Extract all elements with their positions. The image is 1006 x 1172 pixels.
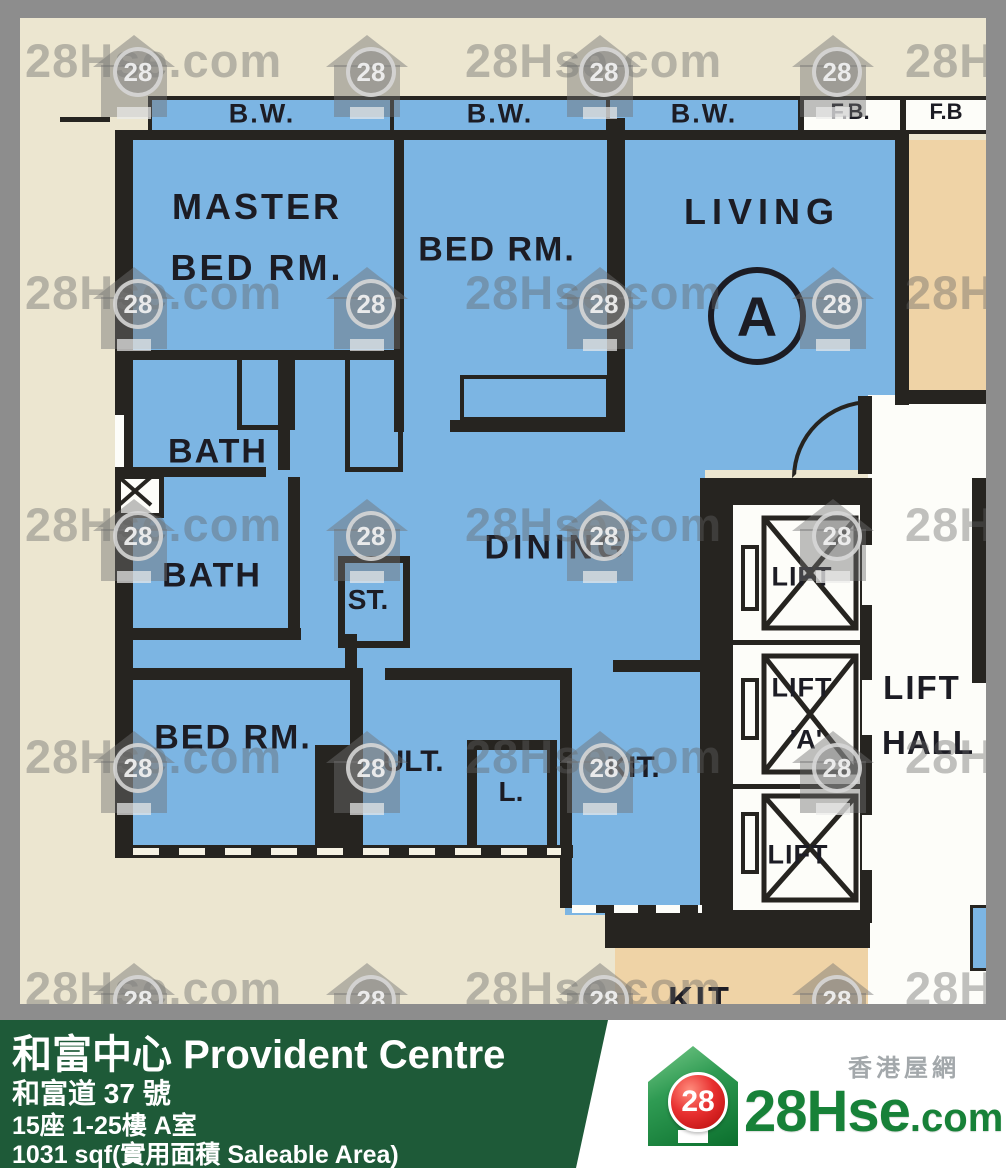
flower-bed-label-2: F.B [930,99,963,125]
lift-separator-1 [733,640,860,645]
bedroom-lower-label: BED RM. [154,719,312,758]
floorplan-area: B.W. B.W. B.W. F.B. F.B MASTER BED RM. B… [0,0,1006,1004]
bay-window-label-1: B.W. [229,99,296,130]
lift-door-3 [741,812,759,874]
bay-window-label-3: B.W. [671,99,738,130]
store-label: ST. [348,584,388,616]
lower-rooms-top-wall-left [133,668,363,680]
neighbor-column-bottom-wall [903,390,986,404]
frame-bottom [0,1004,1006,1020]
unit-a-kitchen-fill [565,660,705,915]
bottom-wall-windows [133,848,561,855]
footer-bar: 和富中心 Provident Centre 和富道 37 號 15座 1-25樓… [0,1020,1006,1172]
bay-window-label-2: B.W. [467,99,534,130]
lift-hall-opening-1 [862,545,872,605]
lift-hall-opening-2 [862,680,872,735]
frame-top [0,0,1006,18]
lift-separator-2 [733,784,860,789]
lower-rooms-top-wall-mid [385,668,563,680]
lift-hall-opening-3 [862,815,872,870]
left-exterior-mark [60,117,110,122]
bedroom-return-wall [450,420,622,432]
brand-logo-text: 28Hse.com [744,1078,1003,1145]
lift-middle-label: LIFT [772,673,833,704]
bath-lower-label: BATH [162,557,262,596]
brand-badge-28: 28 [668,1072,728,1132]
frame-right [986,0,1006,1020]
utility-label: ULT. [382,745,443,779]
dining-label: DINING [485,529,628,568]
neighbor-kitchen-label: KIT [668,981,732,1005]
neighbor-kitchen-top-wall [605,912,870,948]
frame-left [0,0,20,1020]
brand-logo-suffix: .com [910,1096,1003,1140]
lift-top-label: LIFT [772,562,833,593]
dining-kitchen-wall [613,660,705,672]
master-bedroom-label-line1: MASTER [172,186,342,228]
lift-door-2 [741,678,759,740]
kitchen-label: KIT. [606,751,659,785]
living-room-label: LIVING [684,191,840,233]
neighbor-unit-column-fill [905,140,986,395]
bedroom-top-label: BED RM. [418,231,576,270]
lift-hall-label-line2: HALL [882,724,974,762]
bath-lower-bottom-wall [133,628,301,640]
kitchen-left-wall [560,668,572,908]
saleable-area: 1031 sqf(實用面積 Saleable Area) [12,1135,399,1171]
unit-a-marker: A [708,267,806,365]
lavatory-label: L. [499,776,524,808]
bed-utility-pillar [315,745,363,845]
unit-a-marker-letter: A [737,284,777,349]
left-wall-window [115,415,124,467]
brand-logo-main: 28Hse [744,1079,910,1144]
floorplan-page: B.W. B.W. B.W. F.B. F.B MASTER BED RM. B… [0,0,1006,1172]
lift-door-1 [741,545,759,611]
lift-hall-label-line1: LIFT [883,669,961,707]
living-right-wall [895,133,909,405]
brand-house-door [678,1130,708,1143]
neighbor-kitchen-fill [615,948,868,1004]
lift-bottom-label: LIFT [768,840,829,871]
hall-right-wall [972,478,986,683]
bath-lower-right-wall [288,477,300,630]
flower-bed-label-1: F.B. [830,99,869,125]
bedroom-closet [460,375,610,421]
lavatory-left-wall [467,740,477,845]
lavatory-top-wall [467,740,557,750]
unit-top-wall [115,130,907,140]
lift-middle-letter: 'A' [790,725,822,756]
duct-box [116,474,164,518]
master-closet-1 [237,352,295,430]
master-bedroom-label-line2: BED RM. [171,247,344,289]
lavatory-right-wall [547,740,557,845]
brand-logo[interactable]: 香港屋網 28 28Hse.com [640,1040,1000,1165]
master-closet-2 [345,352,403,472]
bath-upper-label: BATH [168,433,268,472]
kitchen-bottom-windows [572,905,702,913]
